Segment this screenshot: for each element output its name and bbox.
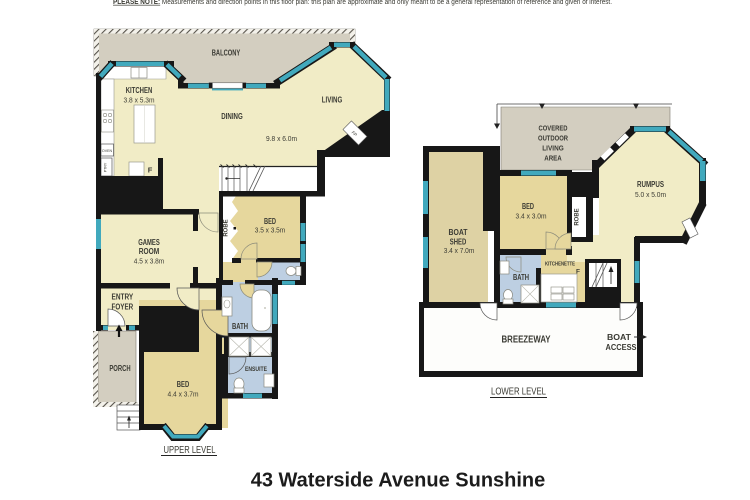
svg-text:ROBE: ROBE — [224, 219, 230, 236]
svg-text:KITCHENETTE: KITCHENETTE — [545, 262, 575, 268]
svg-text:ENSUITE: ENSUITE — [245, 366, 267, 373]
svg-text:4.4 x 3.7m: 4.4 x 3.7m — [168, 390, 199, 399]
svg-text:ACCESS: ACCESS — [606, 342, 637, 352]
svg-text:PORCH: PORCH — [109, 364, 131, 373]
svg-text:PLEASE NOTE: Measurements and: PLEASE NOTE: Measurements and direction … — [113, 0, 612, 6]
svg-text:PTRY: PTRY — [104, 162, 108, 172]
svg-text:UPPER LEVEL: UPPER LEVEL — [164, 445, 216, 456]
svg-text:LIVING: LIVING — [542, 144, 564, 153]
svg-text:3.4 x 3.0m: 3.4 x 3.0m — [516, 212, 547, 221]
svg-text:3.4 x 7.0m: 3.4 x 7.0m — [444, 246, 475, 255]
svg-text:ROBE: ROBE — [575, 208, 581, 225]
svg-text:AREA: AREA — [544, 154, 562, 163]
svg-text:4.5 x 3.8m: 4.5 x 3.8m — [134, 257, 165, 266]
svg-text:OUTDOOR: OUTDOOR — [538, 134, 568, 143]
svg-text:GAMES: GAMES — [138, 238, 160, 247]
svg-text:LOWER LEVEL: LOWER LEVEL — [491, 387, 546, 398]
svg-text:F: F — [576, 269, 580, 276]
svg-text:DINING: DINING — [221, 112, 243, 121]
svg-text:BALCONY: BALCONY — [212, 49, 241, 58]
svg-text:ROOM: ROOM — [139, 247, 160, 256]
svg-text:BATH: BATH — [232, 322, 248, 331]
svg-text:3.5 x 3.5m: 3.5 x 3.5m — [255, 226, 286, 235]
svg-text:BED: BED — [522, 202, 534, 211]
svg-text:BED: BED — [177, 380, 190, 389]
svg-text:43 Waterside Avenue Sunshine: 43 Waterside Avenue Sunshine — [251, 470, 546, 492]
svg-text:FOYER: FOYER — [112, 302, 134, 311]
svg-text:BOAT: BOAT — [607, 332, 632, 342]
svg-text:5.0 x 5.0m: 5.0 x 5.0m — [635, 190, 666, 199]
svg-text:KITCHEN: KITCHEN — [126, 86, 153, 95]
svg-text:OVEN: OVEN — [102, 149, 113, 153]
svg-text:F: F — [148, 166, 153, 175]
svg-text:COVERED: COVERED — [539, 124, 568, 133]
svg-text:BOAT: BOAT — [449, 228, 468, 237]
svg-text:ENTRY: ENTRY — [112, 292, 134, 301]
svg-text:BREEZEWAY: BREEZEWAY — [502, 335, 551, 346]
svg-text:LIVING: LIVING — [322, 96, 343, 105]
svg-text:9.8 x 6.0m: 9.8 x 6.0m — [266, 134, 297, 143]
svg-text:BATH: BATH — [513, 273, 529, 282]
svg-text:RUMPUS: RUMPUS — [637, 180, 664, 189]
svg-text:3.8 x 5.3m: 3.8 x 5.3m — [124, 95, 155, 104]
